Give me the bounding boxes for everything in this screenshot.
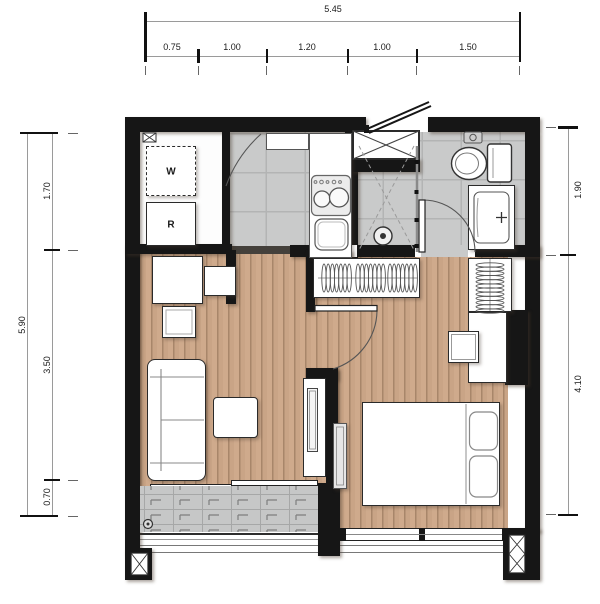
column-icon [131, 535, 525, 575]
bathroom-door-icon [419, 200, 475, 252]
toilet-icon [452, 132, 512, 182]
sofa-icon [150, 369, 204, 471]
kitchen-sink-icon [315, 219, 348, 250]
closet-hangers-icon [476, 259, 504, 313]
bed-icon [466, 404, 498, 504]
bedroom-door-icon [315, 306, 377, 370]
electrical-panel-icon [143, 133, 156, 142]
plan-vector-overlay [0, 0, 600, 604]
vanity-sink-icon [474, 192, 509, 243]
entrance-door-icon [226, 134, 261, 186]
wardrobe-hangers-icon [318, 264, 417, 292]
entrance-door-leaf [364, 102, 431, 133]
floor-plan: 5.45 0.75 1.00 1.20 1.00 1.50 5.90 1.70 … [0, 0, 600, 604]
balcony-floor [140, 486, 318, 532]
shower-area [359, 146, 419, 252]
cooktop-icon [312, 176, 351, 216]
